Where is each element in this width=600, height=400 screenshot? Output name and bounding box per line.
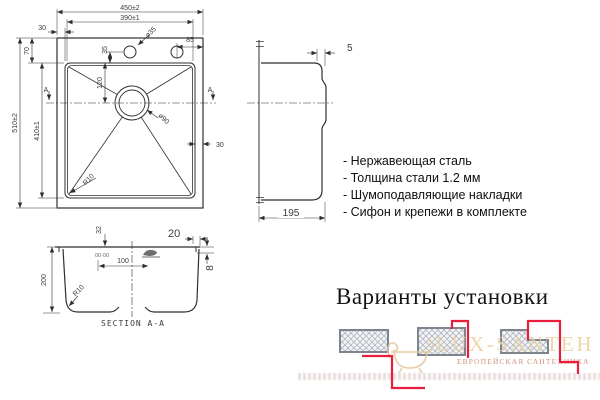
bathtub-watermark-icon bbox=[388, 340, 433, 373]
sink-profile-flushmount bbox=[528, 321, 578, 374]
sink-profile-undermount bbox=[362, 356, 425, 388]
installation-overlay-layer bbox=[0, 0, 600, 400]
sink-spec-sheet: 450±2 390±1 30 85 ø35 70 35 120 ø90 30 R… bbox=[0, 0, 600, 400]
sink-profile-overmount bbox=[452, 321, 468, 358]
